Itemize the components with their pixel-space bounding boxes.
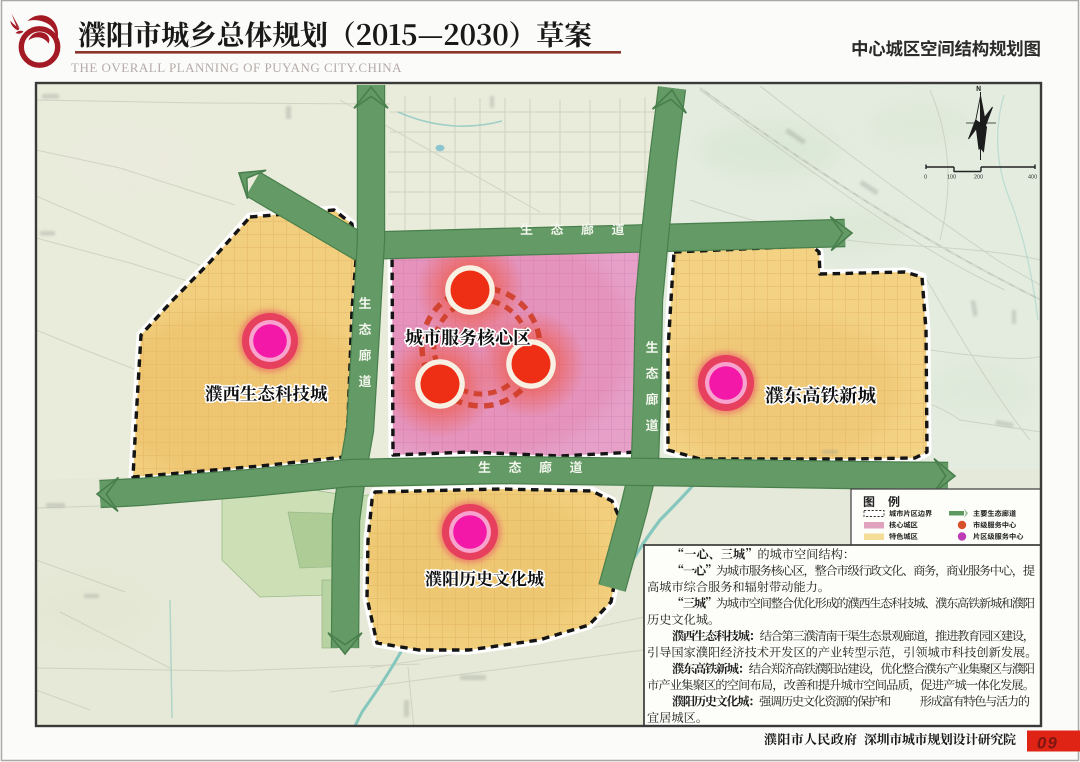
svg-text:09: 09 [1037,735,1058,753]
svg-text:200: 200 [974,175,983,181]
svg-text:0: 0 [924,175,927,181]
svg-text:THE OVERALL PLANNING OF PUYANG: THE OVERALL PLANNING OF PUYANG CITY.CHIN… [71,60,402,75]
svg-text:100: 100 [947,175,956,181]
svg-text:400: 400 [1028,175,1037,181]
